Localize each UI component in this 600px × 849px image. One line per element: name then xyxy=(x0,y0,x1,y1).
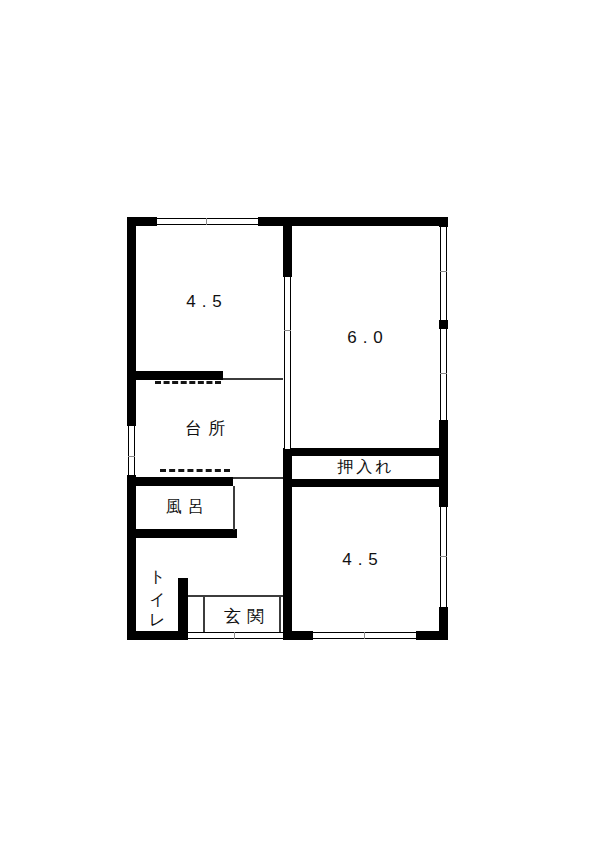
entrance-door xyxy=(188,632,283,639)
room-label-bath: 風呂 xyxy=(166,497,210,518)
wall-right-middle xyxy=(439,420,448,507)
window-right-lower xyxy=(440,507,447,607)
room-label-entrance: 玄関 xyxy=(224,605,270,628)
window-tick xyxy=(364,632,365,639)
wall-right-top-stub xyxy=(439,217,448,227)
dashed-track-room1 xyxy=(155,381,221,384)
wall-room1-kitchen-divider xyxy=(127,371,223,380)
floor-plan: 4.5 6.0 台所 押入れ 風呂 トイレ 玄関 4.5 xyxy=(0,0,600,849)
window-tick xyxy=(440,373,447,374)
wall-center-lower xyxy=(283,448,292,640)
entrance-step-right-edge xyxy=(279,596,281,632)
room-label-tatami-top-right: 6.0 xyxy=(347,328,389,348)
opening-kitchen-hall xyxy=(233,477,283,479)
wall-right-pillar xyxy=(439,320,448,329)
opening-room1-kitchen xyxy=(223,378,283,380)
wall-left-lower xyxy=(127,475,136,640)
wall-center-upper xyxy=(283,217,292,277)
wall-closet-top xyxy=(283,448,448,456)
window-right-upper-2 xyxy=(440,329,447,420)
room-label-tatami-top-left: 4.5 xyxy=(186,292,228,312)
wall-left-upper xyxy=(127,217,136,426)
wall-toilet xyxy=(178,578,188,640)
window-tick xyxy=(440,271,447,272)
wall-kitchen-bath-divider xyxy=(127,477,233,486)
window-tick xyxy=(440,556,447,557)
window-tick xyxy=(284,330,291,331)
window-left-kitchen xyxy=(128,426,135,475)
window-right-upper-1 xyxy=(440,227,447,320)
window-tick xyxy=(234,632,235,639)
window-top xyxy=(157,218,258,225)
dashed-track-kitchen xyxy=(160,469,230,472)
window-tick xyxy=(128,456,135,457)
room-label-closet: 押入れ xyxy=(337,457,394,478)
sliding-partition-center xyxy=(284,277,291,449)
wall-bath-bottom xyxy=(127,529,237,538)
room-label-tatami-bottom-right: 4.5 xyxy=(342,550,384,570)
room-label-toilet: トイレ xyxy=(147,559,168,626)
wall-bottom-right xyxy=(416,631,448,640)
window-tick xyxy=(206,218,207,225)
bath-right-edge xyxy=(233,486,235,530)
room-label-kitchen: 台所 xyxy=(185,417,231,440)
wall-closet-bottom xyxy=(283,479,448,487)
entrance-step-left-edge xyxy=(203,596,205,632)
